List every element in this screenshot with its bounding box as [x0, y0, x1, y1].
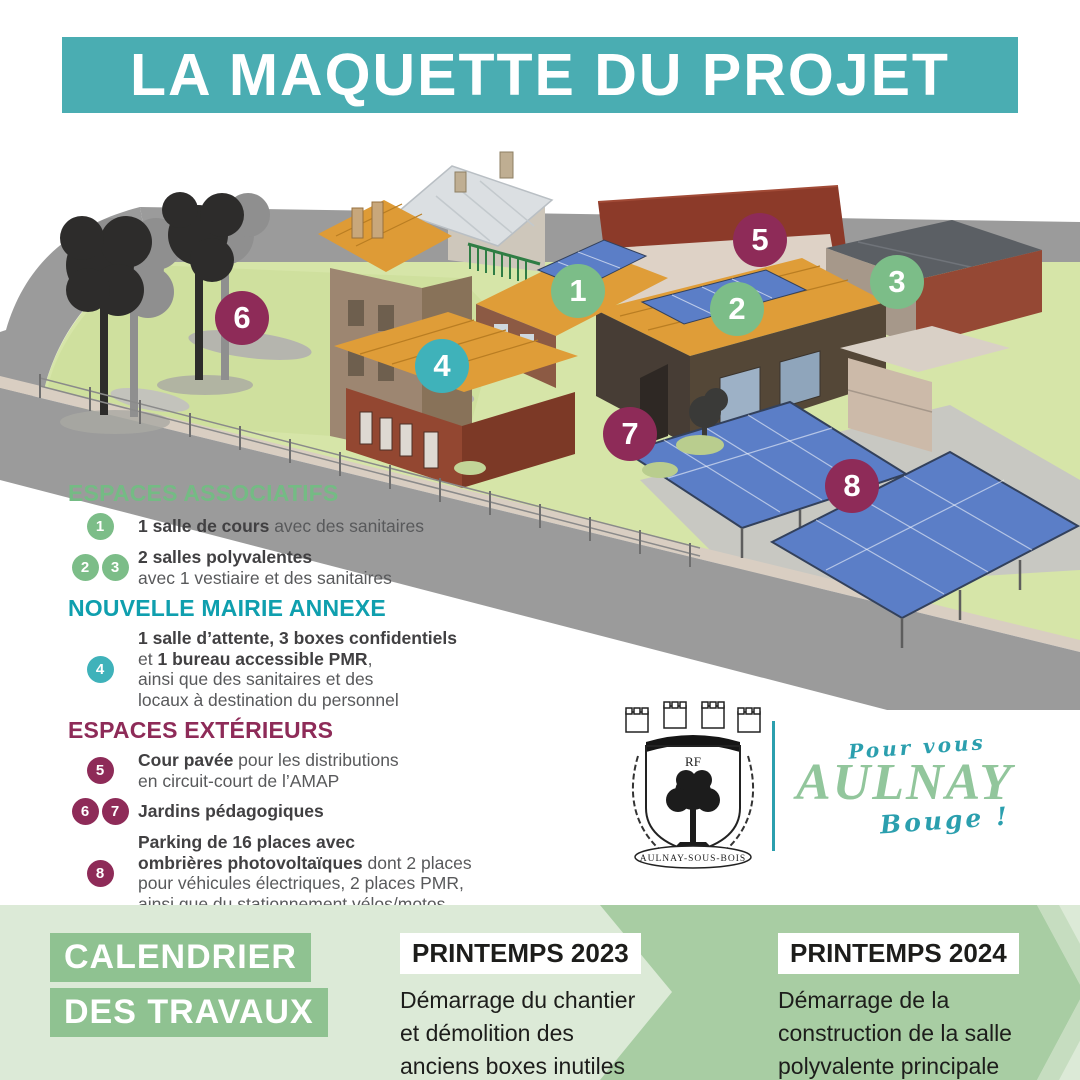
- legend-badge-2: 2: [72, 554, 99, 581]
- model-badge-1: 1: [551, 264, 605, 318]
- model-badge-7: 7: [603, 407, 657, 461]
- legend-badge-column: 67: [68, 798, 132, 825]
- legend-badge-column: 5: [68, 757, 132, 784]
- legend-item-text: Parking de 16 places avecombrières photo…: [138, 832, 472, 914]
- legend-section-0: ESPACES ASSOCIATIFS11 salle de cours ave…: [68, 480, 488, 588]
- legend-badge-6: 6: [72, 798, 99, 825]
- legend-item-text: 1 salle d’attente, 3 boxes confidentiels…: [138, 628, 457, 710]
- milestone-line: anciens boxes inutiles: [400, 1050, 730, 1080]
- model-badge-4: 4: [415, 339, 469, 393]
- calendar-title-line1: CALENDRIER: [50, 933, 311, 982]
- legend-heading: ESPACES EXTÉRIEURS: [68, 717, 488, 743]
- legend-badge-8: 8: [87, 860, 114, 887]
- milestone-line: Démarrage de la: [778, 984, 1080, 1017]
- legend-heading: NOUVELLE MAIRIE ANNEXE: [68, 595, 488, 621]
- legend-heading: ESPACES ASSOCIATIFS: [68, 480, 488, 506]
- milestone-2024-description: Démarrage de laconstruction de la sallep…: [778, 984, 1080, 1080]
- legend-section-1: NOUVELLE MAIRIE ANNEXE41 salle d’attente…: [68, 595, 488, 710]
- milestone-line: construction de la salle: [778, 1017, 1080, 1050]
- legend-badge-3: 3: [102, 554, 129, 581]
- legend-badge-column: 23: [68, 554, 132, 581]
- legend-item: 232 salles polyvalentesavec 1 vestiaire …: [68, 547, 488, 588]
- milestone-2024-period: PRINTEMPS 2024: [778, 933, 1019, 974]
- legend-badge-7: 7: [102, 798, 129, 825]
- shield-initials: RF: [685, 754, 701, 769]
- model-badge-8: 8: [825, 459, 879, 513]
- legend-badge-5: 5: [87, 757, 114, 784]
- logo-divider: [772, 721, 775, 851]
- legend-item-text: 2 salles polyvalentesavec 1 vestiaire et…: [138, 547, 392, 588]
- legend-badge-column: 1: [68, 513, 132, 540]
- legend-section-2: ESPACES EXTÉRIEURS5Cour pavée pour les d…: [68, 717, 488, 914]
- milestone-2023-description: Démarrage du chantieret démolition desan…: [400, 984, 730, 1080]
- legend-item: 5Cour pavée pour les distributionsen cir…: [68, 750, 488, 791]
- legend-badge-1: 1: [87, 513, 114, 540]
- legend-item: 11 salle de cours avec des sanitaires: [68, 513, 488, 540]
- calendar-band: CALENDRIER DES TRAVAUX PRINTEMPS 2023 Dé…: [0, 905, 1080, 1080]
- legend-item-text: 1 salle de cours avec des sanitaires: [138, 516, 424, 537]
- calendar-title-line2: DES TRAVAUX: [50, 988, 328, 1037]
- milestone-2023: PRINTEMPS 2023 Démarrage du chantieret d…: [400, 933, 730, 1080]
- coat-of-arms-icon: RF AULNAY-SOUS-BOIS: [618, 700, 768, 870]
- legend: ESPACES ASSOCIATIFS11 salle de cours ave…: [68, 480, 488, 921]
- model-badge-2: 2: [710, 282, 764, 336]
- legend-item: 8Parking de 16 places avecombrières phot…: [68, 832, 488, 914]
- logo-block: RF AULNAY-SOUS-BOIS Pour vous AULNAY Bou…: [600, 695, 1020, 875]
- legend-badge-column: 8: [68, 860, 132, 887]
- milestone-2024: PRINTEMPS 2024 Démarrage de laconstructi…: [778, 933, 1080, 1080]
- model-badge-3: 3: [870, 255, 924, 309]
- city-banner-text: AULNAY-SOUS-BOIS: [640, 854, 746, 864]
- legend-item-text: Cour pavée pour les distributionsen circ…: [138, 750, 399, 791]
- milestone-2023-period: PRINTEMPS 2023: [400, 933, 641, 974]
- legend-item-text: Jardins pédagogiques: [138, 801, 324, 822]
- legend-badge-4: 4: [87, 656, 114, 683]
- page-title: LA MAQUETTE DU PROJET: [130, 41, 950, 109]
- milestone-line: polyvalente principale: [778, 1050, 1080, 1080]
- legend-item: 67Jardins pédagogiques: [68, 798, 488, 825]
- title-banner: LA MAQUETTE DU PROJET: [62, 37, 1018, 113]
- milestone-line: Démarrage du chantier: [400, 984, 730, 1017]
- milestone-line: et démolition des: [400, 1017, 730, 1050]
- model-badge-6: 6: [215, 291, 269, 345]
- model-badge-5: 5: [733, 213, 787, 267]
- poster-page: LA MAQUETTE DU PROJET: [0, 0, 1080, 1080]
- legend-badge-column: 4: [68, 656, 132, 683]
- legend-item: 41 salle d’attente, 3 boxes confidentiel…: [68, 628, 488, 710]
